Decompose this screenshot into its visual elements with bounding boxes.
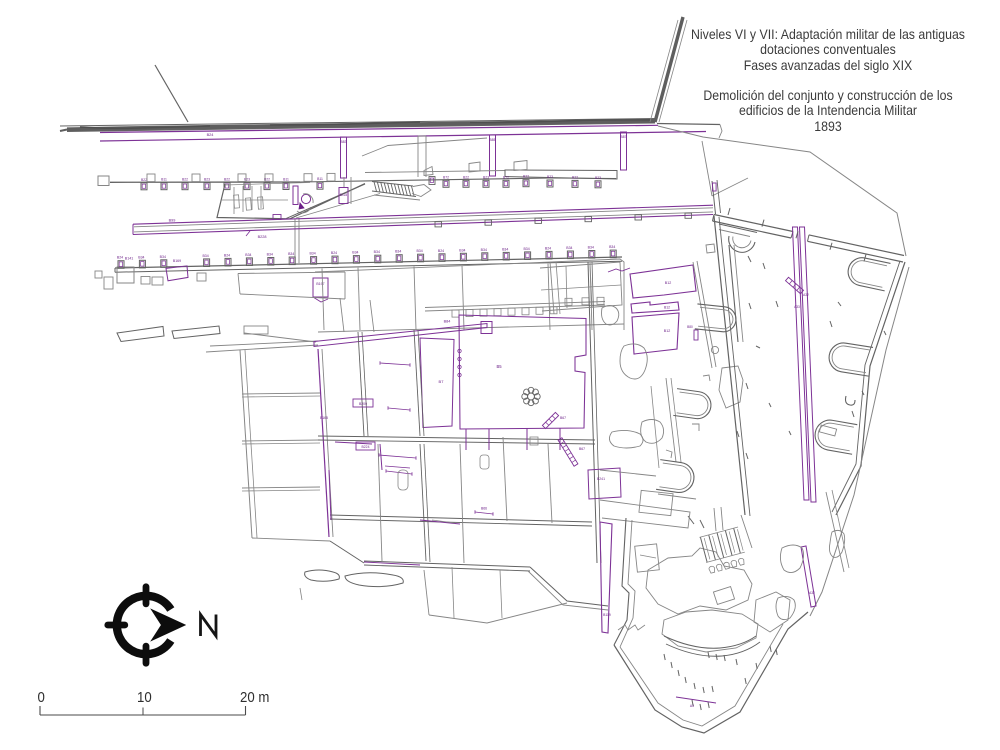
svg-text:B67: B67 xyxy=(579,447,585,451)
svg-text:B7: B7 xyxy=(439,379,445,384)
svg-text:B80: B80 xyxy=(687,325,693,329)
svg-text:B22: B22 xyxy=(224,178,230,182)
svg-text:A3: A3 xyxy=(690,704,694,708)
svg-text:B224: B224 xyxy=(362,445,370,449)
svg-text:B34: B34 xyxy=(288,252,294,256)
svg-text:B228: B228 xyxy=(258,235,267,239)
svg-text:B34: B34 xyxy=(267,253,273,257)
svg-text:B11: B11 xyxy=(317,177,323,181)
svg-text:B22: B22 xyxy=(182,178,188,182)
svg-text:B34: B34 xyxy=(352,251,358,255)
svg-text:B66: B66 xyxy=(481,507,487,511)
svg-text:B12: B12 xyxy=(664,306,670,310)
svg-text:B24: B24 xyxy=(545,246,551,250)
svg-text:B87: B87 xyxy=(620,135,626,139)
svg-text:B34: B34 xyxy=(481,248,487,252)
svg-text:B34: B34 xyxy=(138,255,144,259)
svg-text:B34: B34 xyxy=(502,247,508,251)
svg-text:B34: B34 xyxy=(309,252,315,256)
svg-text:B34: B34 xyxy=(395,250,401,254)
svg-text:B24: B24 xyxy=(207,133,214,137)
svg-text:B5: B5 xyxy=(496,364,502,369)
svg-text:B200: B200 xyxy=(359,402,367,406)
svg-text:B34: B34 xyxy=(588,246,594,250)
svg-text:B22: B22 xyxy=(523,175,529,179)
svg-text:B24: B24 xyxy=(331,251,337,255)
svg-text:B11: B11 xyxy=(161,178,167,182)
svg-text:B197: B197 xyxy=(316,282,324,286)
svg-text:B23: B23 xyxy=(204,178,210,182)
svg-text:B141: B141 xyxy=(125,257,133,261)
svg-text:B83: B83 xyxy=(340,140,346,144)
svg-text:B118: B118 xyxy=(340,193,347,197)
svg-text:B23: B23 xyxy=(547,175,553,179)
svg-text:B34: B34 xyxy=(459,248,465,252)
svg-text:B22: B22 xyxy=(572,175,578,179)
svg-text:B165: B165 xyxy=(320,416,328,420)
svg-text:B23: B23 xyxy=(595,176,601,180)
svg-text:B34: B34 xyxy=(523,247,529,251)
svg-text:B72: B72 xyxy=(443,175,449,179)
svg-text:B22: B22 xyxy=(463,175,469,179)
svg-text:A33: A33 xyxy=(794,305,800,309)
svg-text:B34: B34 xyxy=(416,249,422,253)
svg-text:B34: B34 xyxy=(609,245,615,249)
svg-text:B99: B99 xyxy=(169,218,176,222)
svg-text:B34: B34 xyxy=(245,253,251,257)
svg-text:B12: B12 xyxy=(665,281,671,285)
svg-text:B72: B72 xyxy=(503,175,509,179)
svg-text:B11: B11 xyxy=(283,178,289,182)
svg-text:B34: B34 xyxy=(374,250,380,254)
svg-text:B24: B24 xyxy=(117,256,123,260)
svg-text:B85: B85 xyxy=(489,138,495,142)
svg-text:B67: B67 xyxy=(560,416,566,420)
svg-text:A32: A32 xyxy=(809,591,815,595)
svg-text:B84: B84 xyxy=(444,320,451,324)
svg-text:B24: B24 xyxy=(438,249,444,253)
svg-text:B34: B34 xyxy=(202,254,208,258)
svg-text:B24: B24 xyxy=(224,253,230,257)
svg-text:B12: B12 xyxy=(664,329,670,333)
svg-text:B169: B169 xyxy=(173,259,181,263)
svg-text:A32: A32 xyxy=(803,293,809,297)
svg-text:B22: B22 xyxy=(141,178,147,182)
svg-text:B241: B241 xyxy=(597,477,605,481)
svg-text:B23: B23 xyxy=(483,175,489,179)
svg-text:B23: B23 xyxy=(244,178,250,182)
svg-text:B34: B34 xyxy=(160,255,166,259)
svg-text:B34: B34 xyxy=(566,246,572,250)
svg-text:B119: B119 xyxy=(603,613,611,617)
